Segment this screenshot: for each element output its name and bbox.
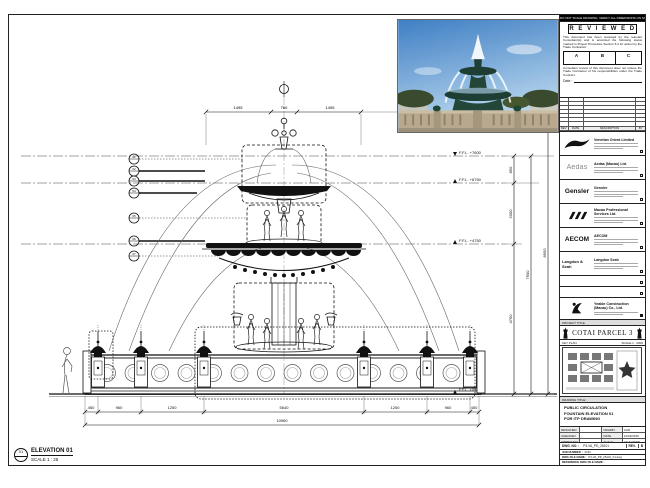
review-stamp-title: R E V I E W E D — [568, 24, 637, 34]
bottom-dimensions: 450 960 1250 5640 1250 960 450 10960 — [83, 396, 481, 427]
medallion-row — [99, 365, 461, 382]
tower-emblem-icon — [636, 327, 643, 339]
checked-value: - — [580, 433, 602, 438]
revision-table: REV DATE DESCRIPTION BY — [560, 98, 645, 132]
callout-1: 01 — [132, 155, 136, 159]
date-label: DATE — [602, 433, 622, 438]
consultant-name: Langdon Seah — [594, 258, 643, 262]
bdim-2: 960 — [116, 405, 123, 410]
consultant-name: AECOM — [594, 234, 643, 238]
aedas-logo: Aedas — [562, 164, 592, 171]
tower-emblem-icon — [562, 327, 569, 339]
job-number-value: 2123 — [585, 450, 591, 454]
drawing-info-table: DESIGNED - DRAWN CAD CHECKED - DATE 12/0… — [560, 427, 645, 443]
consultant-venetian: Venetian Orient Limited — [560, 132, 645, 156]
rev-col-header: REV — [560, 127, 569, 130]
consultant-name: Aedas (Macau) Ltd. — [594, 162, 643, 166]
review-date-row: Date : — [563, 79, 642, 83]
description-col-header: DESCRIPTION — [584, 127, 637, 130]
drawing-sheet: F.F.L. +7600 F.F.L. +6750 F.F.L. +4750 F… — [8, 14, 646, 466]
consultant-mps: Macau Professional Services Ltd. — [560, 204, 645, 228]
consultant-name: Macau Professional Services Ltd. — [594, 208, 643, 216]
stamp-checkbox — [640, 281, 643, 284]
bdim-total: 10960 — [276, 418, 288, 423]
vdim-2000: 2000 — [508, 209, 513, 219]
elevation-scale: SCALE 1 : 25 — [31, 457, 73, 462]
project-title-block: PROJECT TITLE COTAI PARCEL 3 — [560, 320, 645, 340]
dwg-file-label: DWG FILE NAME : — [560, 455, 588, 459]
drawn-value: CAD — [623, 427, 645, 432]
stamp-checkbox-filled — [640, 314, 643, 317]
designed-value: - — [580, 427, 602, 432]
elevation-title-block: 01 ELEVATION 01 SCALE 1 : 25 — [14, 448, 73, 462]
scale-figure — [62, 348, 72, 394]
consultant-gensler: Gensler Gensler — [560, 180, 645, 204]
review-stamp-body: This document has been reviewed by the r… — [563, 36, 642, 50]
dwg-no-label: DWG. NO. : — [560, 444, 581, 448]
top-dim-mid: 760 — [281, 105, 288, 110]
reference-file-row: REFERENCE DWG FILE NAME : — [560, 460, 645, 465]
drawing-title-line3: FOR ITP DRAWING — [564, 416, 641, 422]
mps-logo-icon — [562, 210, 592, 221]
aecom-logo: AECOM — [562, 236, 592, 243]
callout-2: 02 — [132, 167, 136, 171]
callout-5: 05 — [132, 214, 136, 218]
consultant-name: Venetian Orient Limited — [594, 138, 643, 142]
right-dimensions: 850 2000 4750 7600 8950 — [361, 110, 554, 396]
statue-tier — [231, 283, 337, 352]
review-grade-row: A B C — [563, 51, 642, 65]
key-plan-block: KEY PLAN SCALE 1 : 2000 — [560, 340, 645, 397]
contractor-entry: Yeable Construction (Macau) Co., Ltd. — [560, 298, 645, 320]
key-plan-map — [562, 347, 642, 394]
fountain-photo-image — [398, 20, 558, 132]
dwg-no-value: P3-VA_PD_25101 — [581, 444, 625, 448]
bdim-1: 450 — [88, 405, 95, 410]
review-stamp-note: Consultant review of this document does … — [563, 67, 642, 78]
langdon-seah-logo: Langdon & Seah — [562, 259, 592, 269]
grade-a-cell: A — [564, 52, 590, 64]
dwg-file-value: P3-VA_PD_25101_F1.dwg — [588, 455, 621, 459]
title-block-sidebar: DO NOT SCALE DRAWING. VERIFY ALL DIMENSI… — [559, 15, 645, 465]
rev-value: B — [638, 444, 645, 448]
grade-c-cell: C — [616, 52, 641, 64]
date-value: 12/04/2015 — [623, 433, 645, 438]
vdim-4750: 4750 — [508, 314, 513, 324]
project-name: COTAI PARCEL 3 — [572, 329, 633, 337]
date-underline — [574, 79, 642, 83]
level-lines — [21, 156, 506, 244]
by-col-header: BY — [636, 127, 645, 130]
stamp-checkbox — [640, 150, 643, 153]
stamp-checkbox — [640, 270, 643, 273]
fountain-reference-photo — [397, 19, 559, 133]
job-number-label: JOB NUMBER : — [560, 450, 585, 454]
top-dim-right: 1495 — [326, 105, 336, 110]
blank-consultant-box — [560, 276, 645, 287]
revision-header-row: REV DATE DESCRIPTION BY — [560, 127, 645, 131]
gensler-logo: Gensler — [562, 188, 592, 195]
drawing-title-block: DRAWING TITLE : PUBLIC CIRCULATION FOUNT… — [560, 397, 645, 427]
stamp-checkbox — [640, 174, 643, 177]
bdim-3: 1250 — [168, 405, 178, 410]
vdim-7600: 7600 — [525, 270, 530, 280]
stamp-checkbox — [640, 198, 643, 201]
dwg-number-row: DWG. NO. : P3-VA_PD_25101 REV. B — [560, 443, 645, 450]
bdim-6: 960 — [445, 405, 452, 410]
stamp-checkbox — [640, 246, 643, 249]
callout-4: 04 — [132, 189, 136, 193]
consultant-langdon: Langdon & Seah Langdon Seah — [560, 252, 645, 276]
ffl-4750: F.F.L. +4750 — [459, 238, 482, 243]
ffl-6750: F.F.L. +6750 — [459, 177, 482, 182]
elevation-title: ELEVATION 01 — [31, 448, 73, 456]
consultant-name: Gensler — [594, 186, 643, 190]
callout-6: 06 — [132, 237, 136, 241]
bdim-5: 1250 — [391, 405, 401, 410]
consultant-aecom: AECOM AECOM — [560, 228, 645, 252]
blank-consultant-box — [560, 287, 645, 298]
vdim-850: 850 — [508, 166, 513, 173]
drawn-label: DRAWN — [602, 427, 622, 432]
key-plan-scale: SCALE 1 : 2000 — [621, 341, 643, 345]
checked-label: CHECKED — [560, 433, 580, 438]
callout-7: 07 — [132, 252, 136, 256]
top-dimension: 1495 760 1495 — [204, 105, 363, 145]
date-label: Date : — [563, 79, 572, 83]
date-col-header: DATE — [569, 127, 584, 130]
stamp-checkbox — [640, 222, 643, 225]
contractor-name: Yeable Construction (Macau) Co., Ltd. — [594, 302, 643, 310]
ffl-7600: F.F.L. +7600 — [459, 150, 482, 155]
rev-label: REV. — [626, 444, 638, 448]
top-dim-left: 1495 — [234, 105, 244, 110]
consultant-aedas: Aedas Aedas (Macau) Ltd. — [560, 156, 645, 180]
vdim-8950: 8950 — [542, 248, 547, 258]
key-plan-header: KEY PLAN — [562, 341, 577, 345]
review-stamp: R E V I E W E D This document has been r… — [560, 22, 645, 98]
reference-file-label: REFERENCE DWG FILE NAME : — [560, 460, 606, 465]
stamp-checkbox — [640, 292, 643, 295]
detail-bubble-number: 01 — [19, 449, 23, 454]
bdim-4: 5640 — [280, 405, 290, 410]
designed-label: DESIGNED — [560, 427, 580, 432]
venetian-flourish-logo-icon — [562, 137, 592, 151]
notice-bar: DO NOT SCALE DRAWING. VERIFY ALL DIMENSI… — [560, 15, 645, 22]
detail-bubble: 01 — [14, 448, 28, 462]
grade-b-cell: B — [590, 52, 616, 64]
bdim-7: 450 — [471, 405, 478, 410]
contractor-emblem-icon — [562, 300, 592, 317]
callout-3: 03 — [132, 177, 136, 181]
